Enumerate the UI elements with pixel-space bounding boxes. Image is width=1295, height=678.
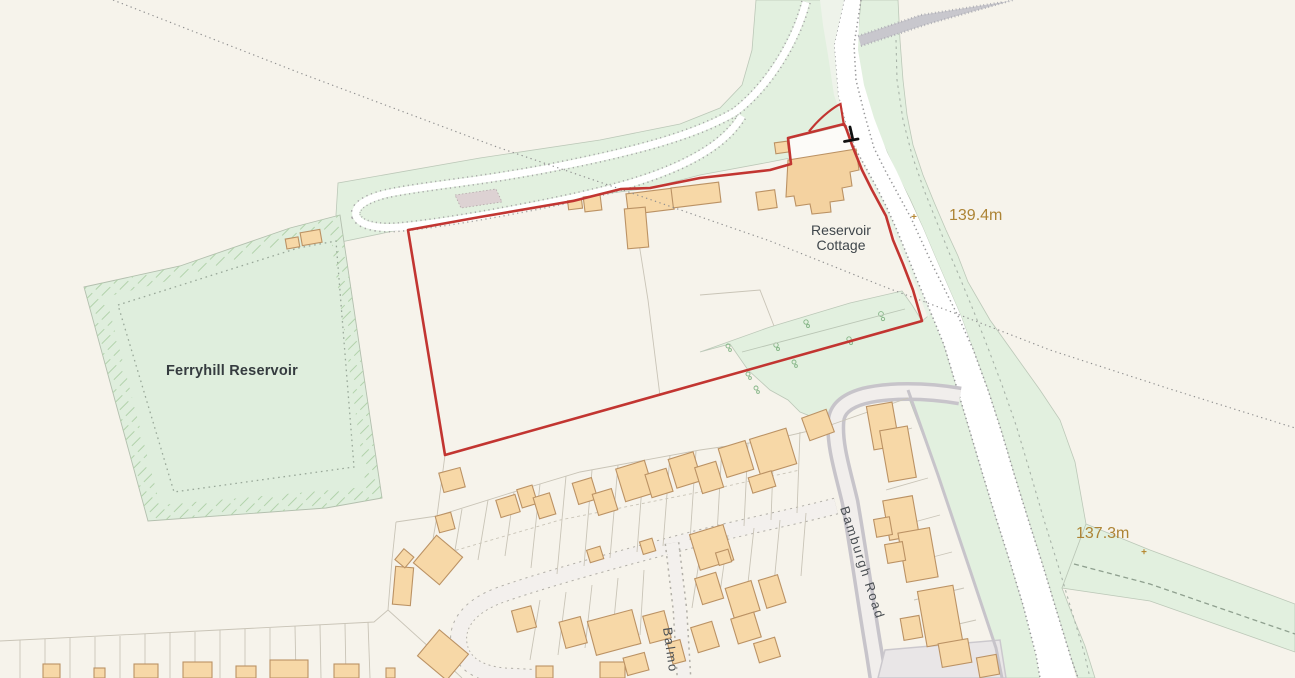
- svg-text:Reservoir: Reservoir: [811, 222, 871, 238]
- svg-text:Cottage: Cottage: [816, 237, 865, 253]
- svg-text:Ferryhill Reservoir: Ferryhill Reservoir: [166, 363, 298, 379]
- svg-text:139.4m: 139.4m: [949, 207, 1002, 224]
- svg-text:137.3m: 137.3m: [1076, 525, 1129, 542]
